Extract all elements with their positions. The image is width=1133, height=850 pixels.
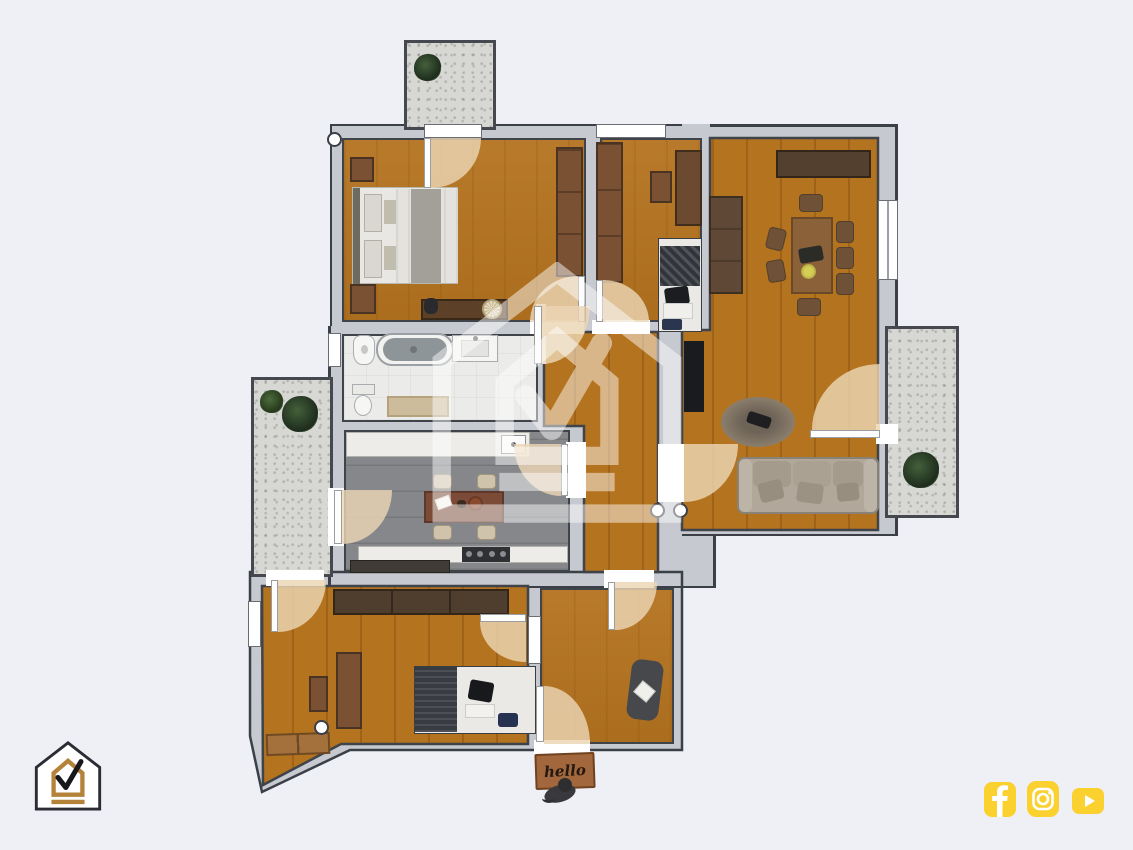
nightstand <box>350 157 374 182</box>
bidet <box>353 335 375 365</box>
door-leaf <box>608 582 615 630</box>
shelf <box>650 171 672 203</box>
bidet-drain <box>361 345 368 354</box>
burner <box>466 551 472 557</box>
cat <box>542 778 584 806</box>
door-leaf <box>810 430 880 438</box>
window <box>248 601 261 647</box>
dining-chair <box>836 273 854 295</box>
wall-edge <box>713 536 716 588</box>
bed-pillow <box>498 713 518 727</box>
bed-pillow <box>465 704 495 718</box>
cat-tail <box>542 794 556 803</box>
youtube-icon[interactable] <box>1072 788 1104 814</box>
cabinet <box>675 150 702 226</box>
door-leaf <box>334 490 342 544</box>
headboard <box>353 188 360 285</box>
kitchen-chair <box>433 525 452 540</box>
toilet-bowl <box>354 395 372 416</box>
window <box>878 200 898 280</box>
bed-pillow <box>467 679 494 703</box>
door-knob <box>327 132 342 147</box>
double-bed <box>414 666 536 734</box>
cabinet <box>336 652 362 729</box>
shelf <box>309 676 328 712</box>
window <box>424 124 482 138</box>
corner-cabinet <box>266 732 331 756</box>
table-plate <box>801 264 816 279</box>
door-leaf <box>424 138 431 188</box>
bed-cushion <box>384 200 396 224</box>
toilet-tank <box>352 384 375 395</box>
balcony-right <box>885 326 959 518</box>
wall-edge <box>710 124 898 127</box>
dining-chair <box>765 259 787 284</box>
floorplan-canvas: hello <box>0 0 1133 850</box>
house-check-logo <box>32 740 104 812</box>
bed-pillow <box>364 194 382 232</box>
house-check-watermark <box>412 262 702 524</box>
door-knob <box>314 720 329 735</box>
toilet <box>352 384 375 417</box>
stove <box>462 547 510 562</box>
door-leaf <box>480 614 526 622</box>
window <box>328 333 341 367</box>
sofa-pillow <box>757 478 785 503</box>
sofa-pillow <box>796 481 825 504</box>
dining-chair <box>797 298 821 316</box>
wardrobe <box>556 147 583 277</box>
dining-chair <box>836 221 854 243</box>
nightstand <box>350 284 376 314</box>
cat-head <box>558 778 572 792</box>
window <box>528 616 541 664</box>
balcony-top <box>404 40 496 130</box>
dining-chair <box>836 247 854 269</box>
kitchen-chair <box>477 525 496 540</box>
burner <box>477 551 483 557</box>
sofa-arm <box>864 459 877 512</box>
facebook-icon[interactable] <box>984 782 1016 817</box>
wide-wardrobe <box>333 589 509 615</box>
burner <box>500 551 506 557</box>
window <box>596 124 666 138</box>
sofa <box>737 457 879 514</box>
sofa-pillow <box>836 482 860 502</box>
blanket <box>415 667 457 732</box>
door-leaf <box>536 686 544 742</box>
sideboard <box>776 150 871 178</box>
kitchen-bench <box>350 560 450 573</box>
sofa-arm <box>739 459 752 512</box>
tall-cabinet <box>709 196 743 294</box>
dining-chair <box>799 194 823 212</box>
burner <box>489 551 495 557</box>
instagram-icon[interactable] <box>1027 781 1059 817</box>
door-leaf <box>271 580 278 632</box>
bed-pillow <box>364 240 382 278</box>
bed-cushion <box>384 246 396 270</box>
